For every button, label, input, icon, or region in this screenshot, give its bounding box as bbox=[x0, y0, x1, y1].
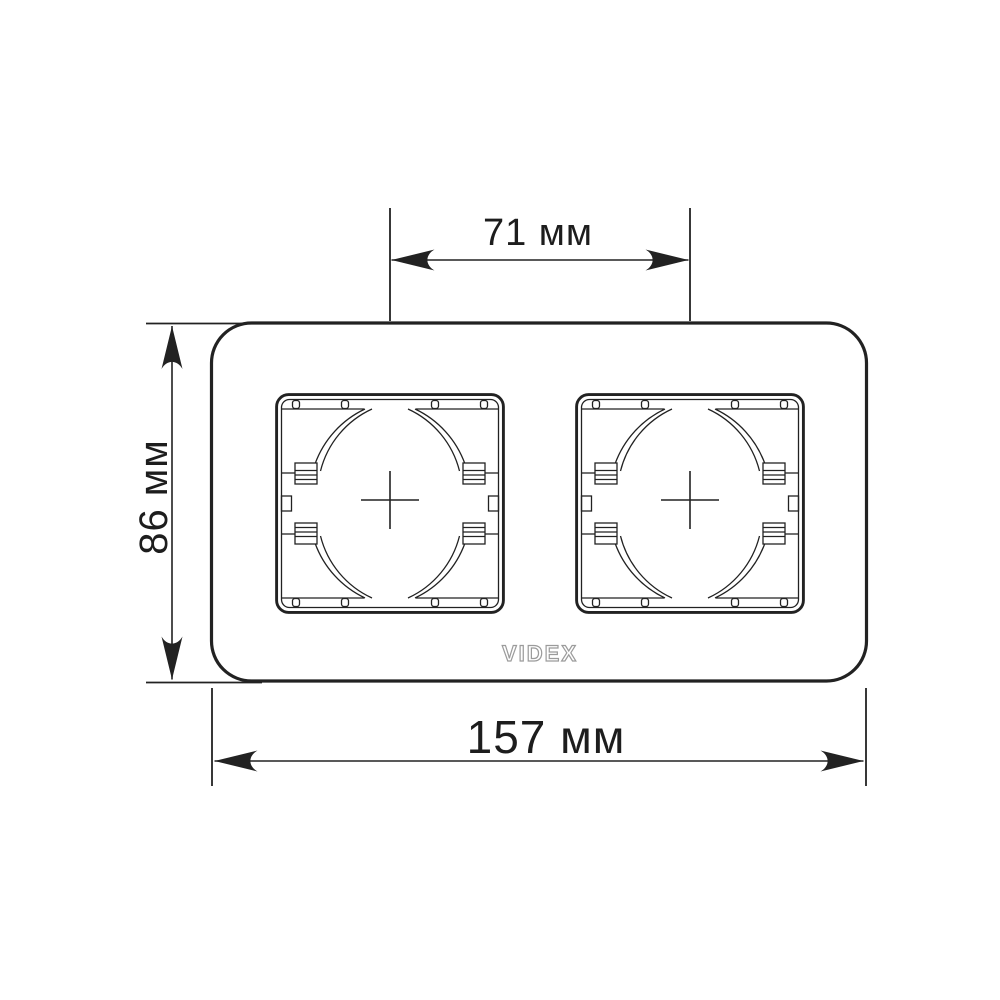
dimension-diagram-stage: VIDEX 71 мм 86 мм 157 мм bbox=[0, 0, 1000, 1000]
frame-outline bbox=[212, 323, 867, 681]
dimension-label-width: 157 мм bbox=[467, 711, 626, 763]
dimension-label-top: 71 мм bbox=[483, 212, 593, 254]
dimension-label-height: 86 мм bbox=[132, 439, 176, 555]
socket-frame-dimension-diagram: VIDEX 71 мм 86 мм 157 мм bbox=[0, 0, 1000, 1000]
brand-logo: VIDEX bbox=[502, 641, 578, 666]
